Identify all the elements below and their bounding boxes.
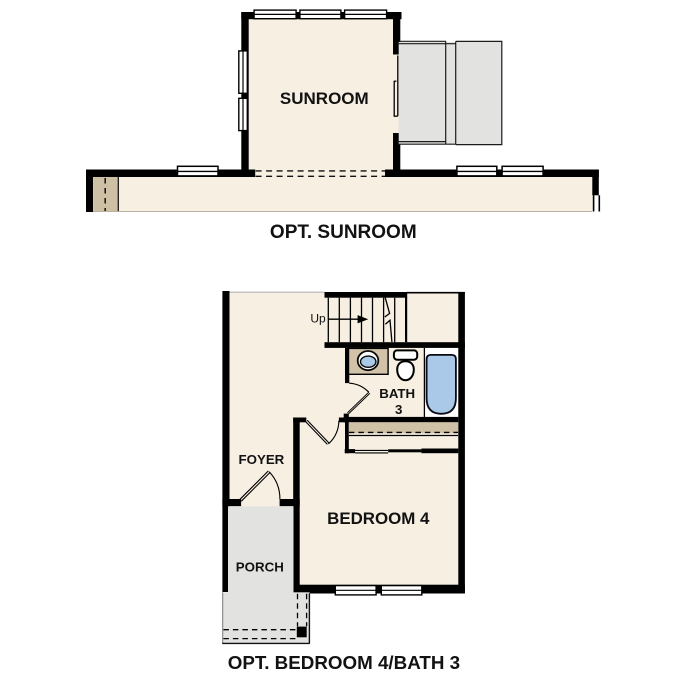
svg-text:SUNROOM: SUNROOM [280,89,369,108]
svg-text:Up: Up [310,312,326,326]
svg-text:3: 3 [395,402,402,417]
svg-text:PORCH: PORCH [236,560,284,575]
svg-text:OPT. SUNROOM: OPT. SUNROOM [270,222,417,243]
svg-text:BATH: BATH [379,386,415,401]
svg-text:BEDROOM 4: BEDROOM 4 [327,509,430,528]
svg-text:FOYER: FOYER [238,452,284,467]
svg-text:OPT. BEDROOM 4/BATH 3: OPT. BEDROOM 4/BATH 3 [228,652,460,673]
